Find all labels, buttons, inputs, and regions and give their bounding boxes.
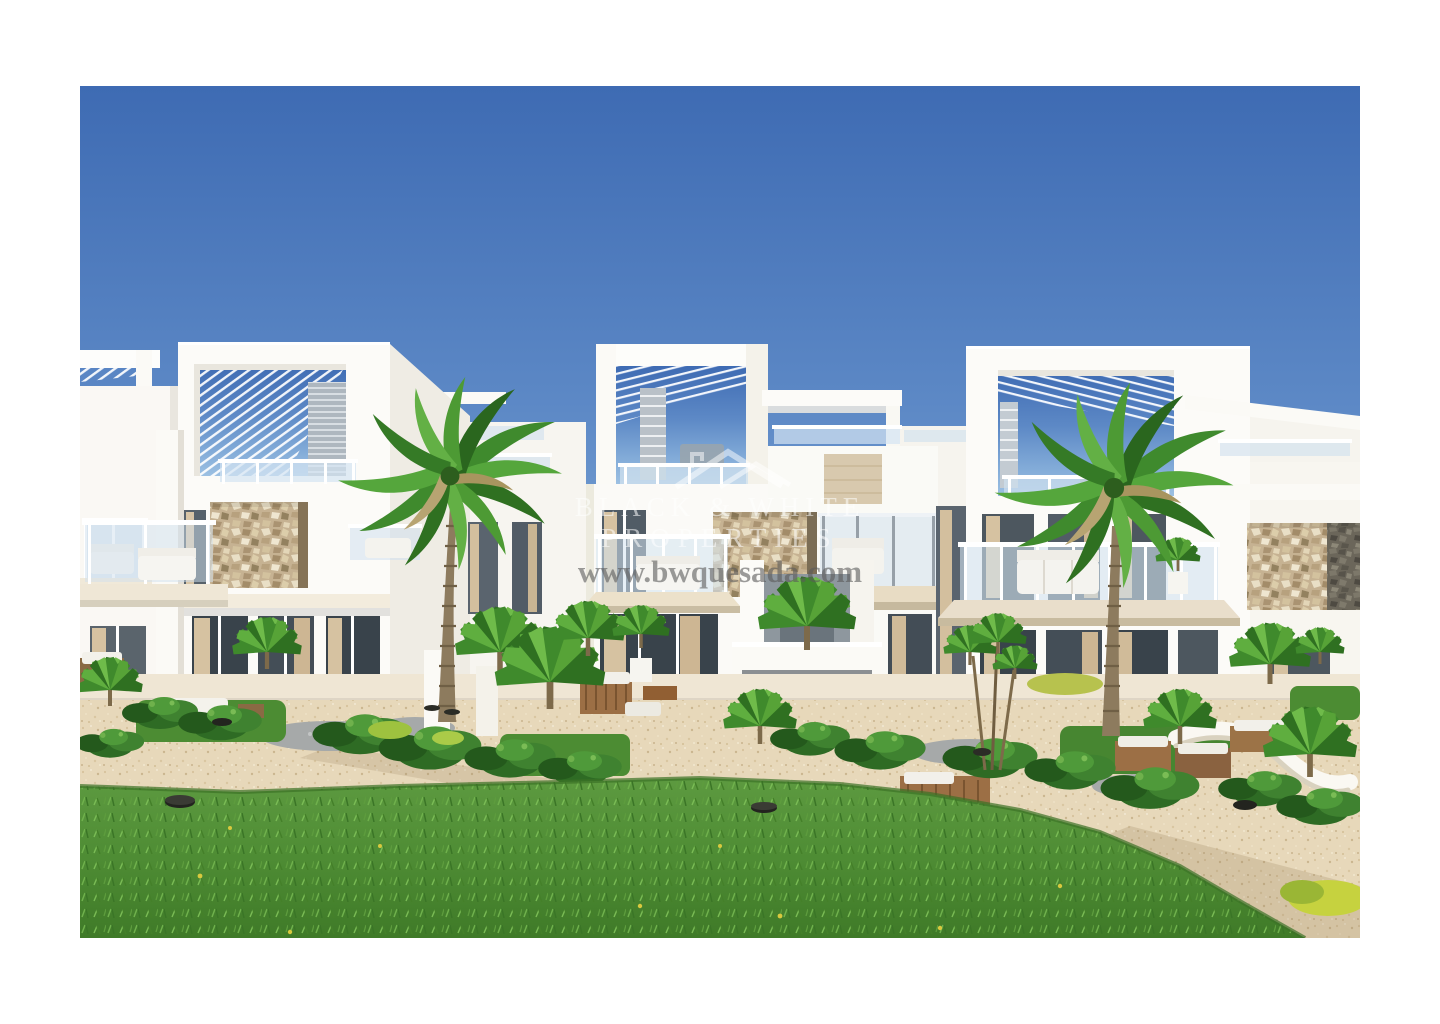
- right-stone-feature-wall: [1247, 523, 1360, 610]
- watermark-brand-line2: PROPERTIES: [601, 523, 838, 553]
- left-roof-terrace-railing: [218, 459, 358, 484]
- page-background: BLACK & WHITE PROPERTIES www.bwquesada.c…: [0, 0, 1440, 1024]
- property-listing-photo: BLACK & WHITE PROPERTIES www.bwquesada.c…: [80, 86, 1360, 938]
- watermark-brand-line1: BLACK & WHITE: [575, 492, 865, 522]
- watermark-website: www.bwquesada.com: [578, 554, 862, 589]
- center-rooftop-pergola: [596, 344, 768, 486]
- left-shared-balcony: [80, 520, 228, 607]
- left-mid-balcony: [348, 524, 422, 560]
- left-stone-feature-wall: [210, 502, 308, 588]
